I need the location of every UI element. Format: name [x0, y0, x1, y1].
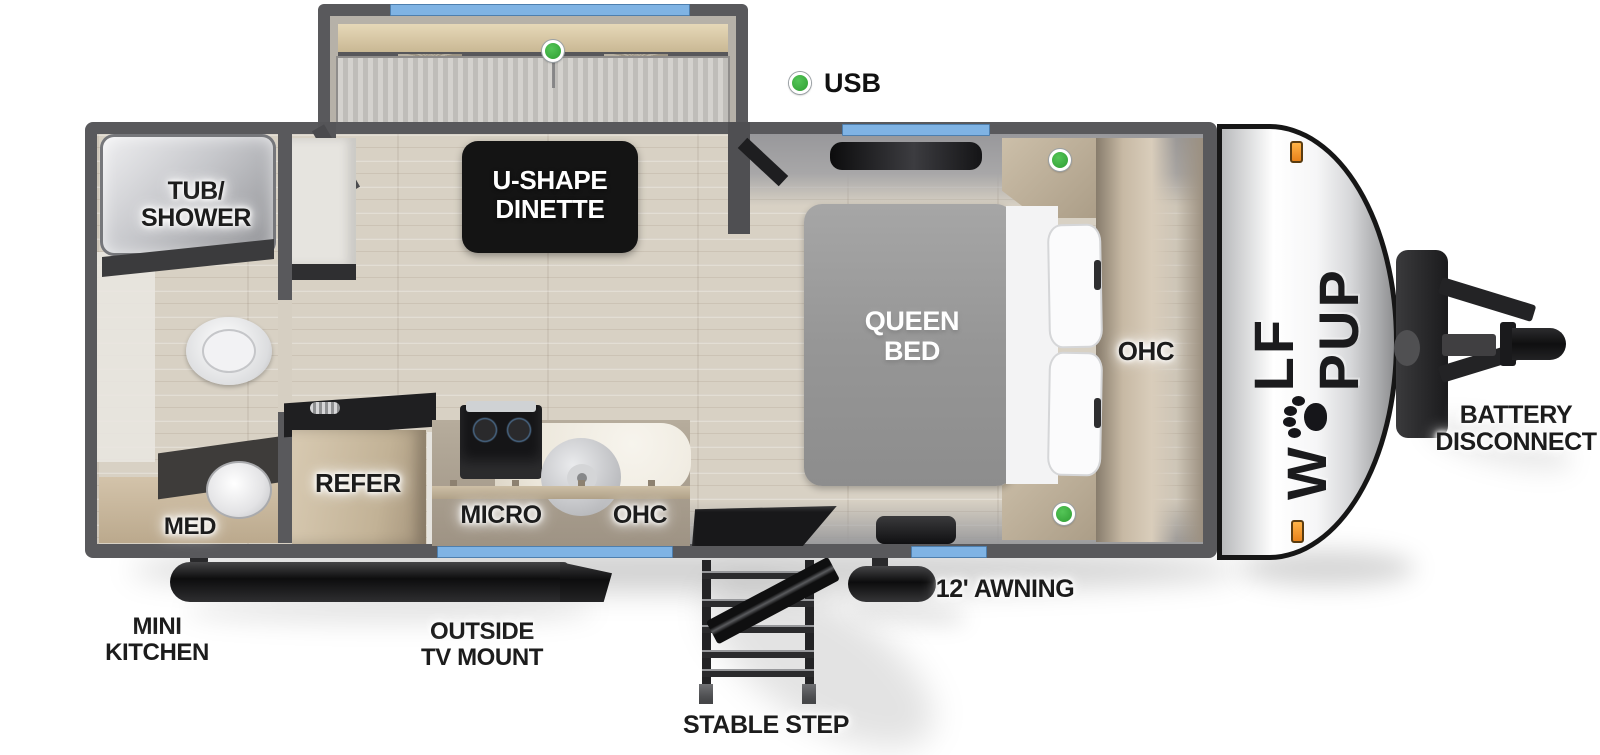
usb-legend-dot — [789, 72, 811, 94]
hitch-coupler — [1512, 328, 1566, 360]
window-dinette — [390, 4, 690, 16]
floorplan-canvas: U-SHAPE DINETTE TUB/ SHOWER MED REFER MI… — [0, 0, 1600, 755]
awning-label: 12' AWNING — [936, 576, 1075, 603]
stable-step — [685, 550, 860, 710]
brand-logo: WLF PUP — [1258, 180, 1354, 500]
usb-indicator-dot — [1049, 149, 1071, 171]
kitchen-ohc-label: OHC — [613, 502, 667, 529]
burner-icon — [506, 417, 532, 443]
dinette-label: U-SHAPE DINETTE — [493, 166, 608, 224]
micro-label: MICRO — [460, 502, 541, 529]
closet — [292, 138, 356, 266]
bathroom-sink — [206, 461, 272, 519]
bathroom-wall-finish — [97, 252, 155, 462]
brand-text-w: W — [1274, 444, 1339, 500]
marker-light-icon — [1291, 520, 1304, 543]
wardrobe-handle — [1094, 398, 1101, 428]
cooktop — [460, 405, 542, 479]
toilet-seat — [202, 329, 256, 373]
mini-kitchen-label: MINI KITCHEN — [105, 614, 209, 665]
paw-icon — [1282, 396, 1330, 439]
usb-indicator-dot — [542, 40, 564, 62]
refer-label: REFER — [315, 470, 401, 498]
stable-step-label: STABLE STEP — [683, 712, 849, 739]
faucet-icon — [310, 402, 340, 414]
entry-shelf — [876, 516, 956, 544]
battery-disconnect-knob — [1394, 330, 1420, 366]
step-foot — [802, 684, 816, 704]
tub-shower-label: TUB/ SHOWER — [141, 178, 251, 232]
dinette-table-ledge — [338, 24, 728, 52]
window-bedroom — [842, 124, 990, 136]
outside-tv-mount-label: OUTSIDE TV MOUNT — [421, 619, 543, 670]
marker-light-icon — [1290, 141, 1303, 163]
mini-kitchen-tube — [170, 562, 568, 602]
hitch-center-bar — [1442, 334, 1496, 356]
bedroom-ohc-label: OHC — [1118, 338, 1175, 366]
queen-bed-label: QUEEN BED — [865, 306, 960, 366]
step-rung — [702, 669, 814, 677]
kitchen-ledge — [432, 486, 690, 499]
burner-icon — [472, 417, 498, 443]
brand-text-rest: LF PUP — [1241, 180, 1371, 391]
window-entry — [911, 546, 987, 558]
step-foot — [699, 684, 713, 704]
dinette-usb-wire — [552, 58, 555, 88]
closet-trim — [292, 264, 356, 280]
cooktop-frame — [466, 401, 536, 412]
awning-roller — [848, 566, 936, 602]
battery-disconnect-label: BATTERY DISCONNECT — [1435, 402, 1596, 456]
hitch-arm-top — [1438, 277, 1537, 322]
wardrobe-handle — [1094, 260, 1101, 290]
bathroom-door-opening — [278, 300, 292, 412]
window-kitchen — [437, 546, 673, 558]
med-label: MED — [164, 514, 216, 540]
usb-indicator-dot — [1053, 503, 1075, 525]
bedroom-tv-shelf — [830, 142, 982, 170]
usb-legend-label: USB — [824, 68, 881, 99]
step-rung — [702, 650, 814, 658]
